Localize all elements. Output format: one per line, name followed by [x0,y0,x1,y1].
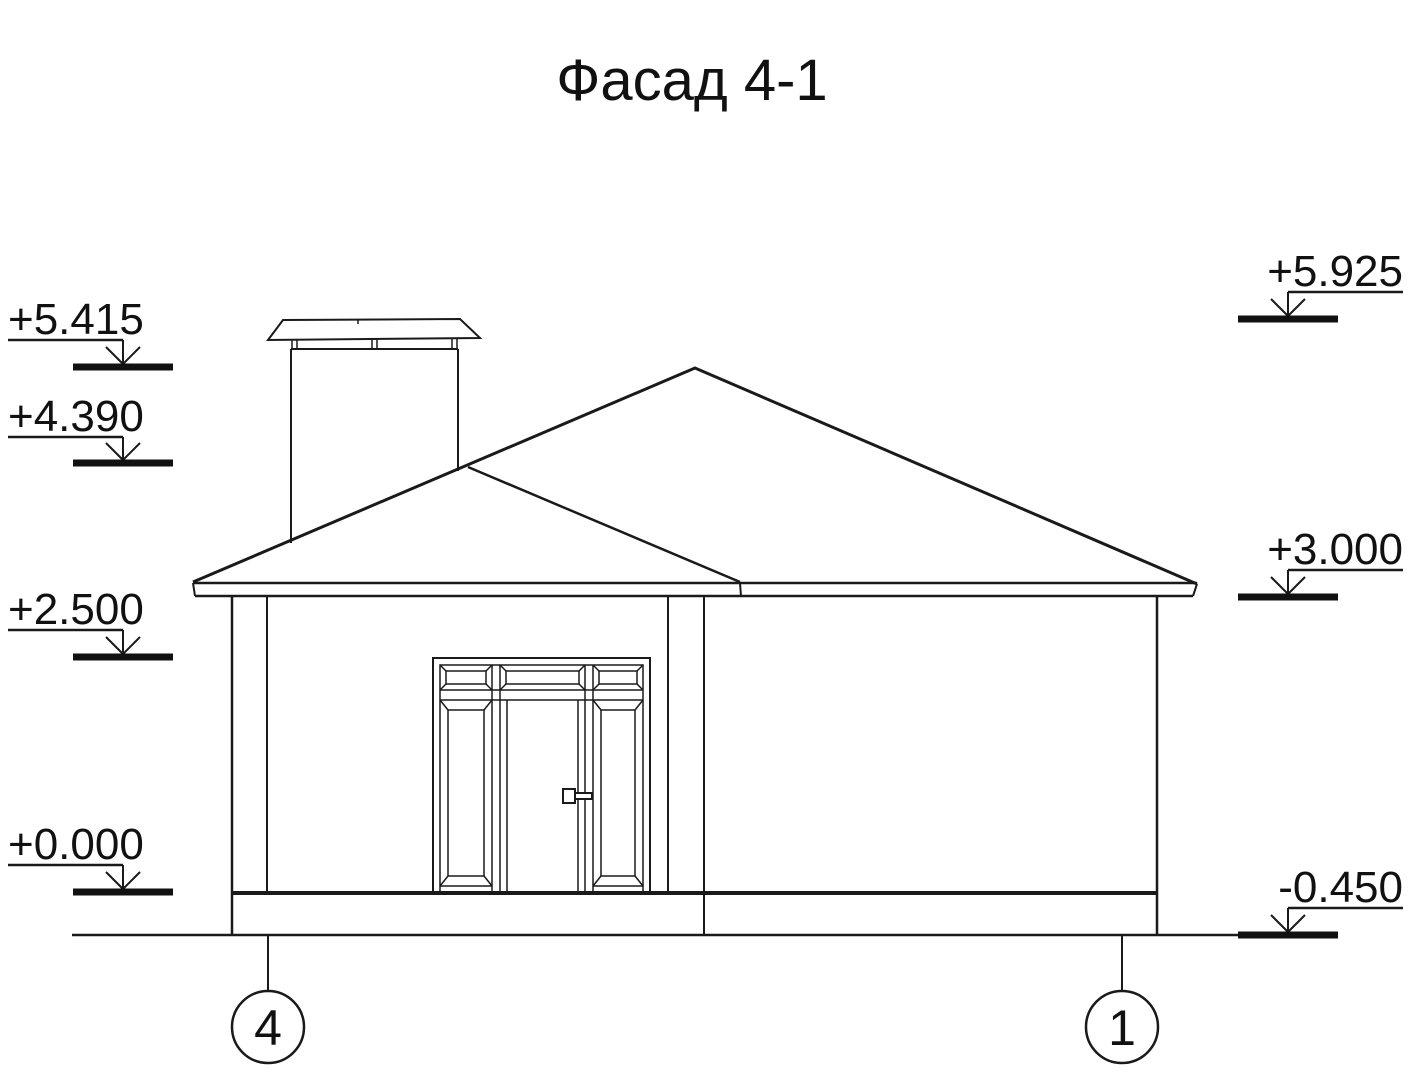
drawing-title: Фасад 4-1 [556,48,827,113]
transom-pane-right [593,665,643,690]
elevation-value: +3.000 [1267,525,1403,574]
elevation-mark-5415: +5.415 [8,295,173,367]
elevation-value: +5.925 [1267,247,1403,296]
transom-pane-left [440,665,492,690]
elevation-mark-neg0450: -0.450 [1238,863,1403,935]
facade-drawing-page: Фасад 4-1 [0,0,1424,1080]
elevation-value: -0.450 [1278,863,1403,912]
door-frame-outer [433,658,650,893]
door-sidelight-right [593,700,643,886]
elevation-mark-4390: +4.390 [8,392,173,463]
door-frame-inner [440,665,643,893]
axis-marker-1: 1 [1086,935,1158,1063]
entrance-door-unit [433,658,650,893]
axis-marker-4: 4 [232,935,304,1063]
roof [193,368,1197,596]
eave-fascia [193,583,1197,596]
transom-pane-center [500,665,585,690]
axis-label: 4 [254,1000,282,1056]
elevation-mark-2500: +2.500 [8,585,173,657]
facade-elevation-drawing: Фасад 4-1 [0,0,1424,1080]
chimney-body [291,349,458,543]
door-transom-rails [440,690,643,700]
walls [232,596,1157,935]
elevation-mark-3000: +3.000 [1238,525,1403,597]
roof-hip-line [468,467,740,582]
elevation-mark-0000: +0.000 [8,820,173,892]
chimney-cap [268,319,480,340]
elevation-mark-5925: +5.925 [1238,247,1403,319]
axis-label: 1 [1108,1000,1136,1056]
elevation-value: +0.000 [8,820,144,869]
chimney [268,319,480,543]
elevation-value: +5.415 [8,295,144,344]
elevation-value: +4.390 [8,392,144,441]
door-sidelight-left [440,700,492,886]
roof-slopes [193,368,1197,584]
elevation-value: +2.500 [8,585,144,634]
